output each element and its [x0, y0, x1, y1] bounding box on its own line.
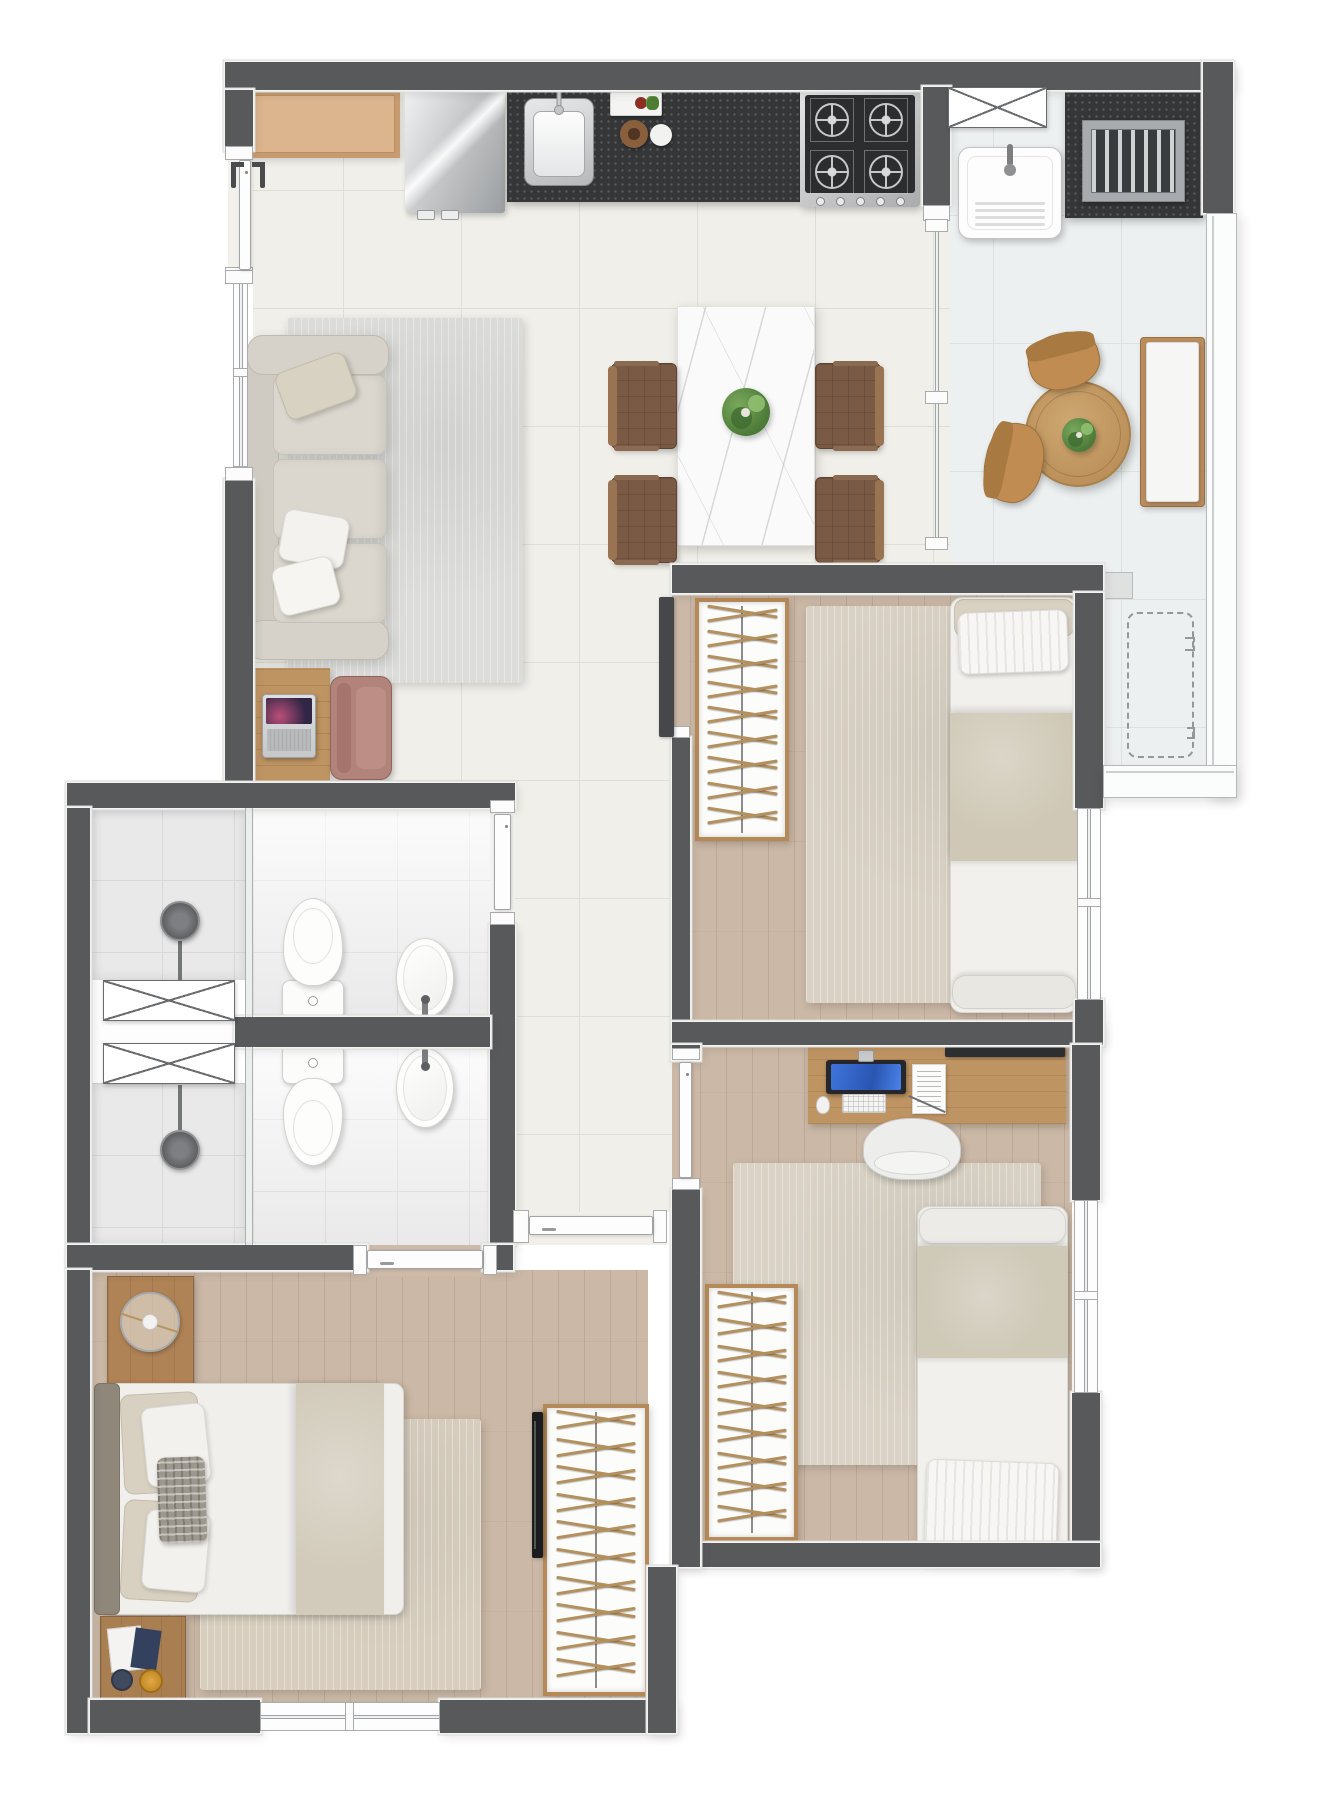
bedroom1-window — [1077, 808, 1101, 1000]
desk-keyboard — [842, 1094, 886, 1113]
wall-kitchen-service — [923, 87, 950, 205]
bedroom2-bed — [917, 1206, 1068, 1563]
bedroom2-door-cap-b — [672, 1178, 700, 1190]
bathroom1-door-cap-b — [490, 912, 515, 925]
suite-door-cap-a — [353, 1245, 367, 1275]
dining-plant — [722, 388, 770, 436]
wall-bedroom1-bottom — [672, 1022, 1103, 1045]
sofa — [245, 335, 395, 660]
balcony-railing-right — [1206, 213, 1237, 798]
balcony-plant — [1062, 418, 1096, 452]
bathroom1-door-cap-a — [490, 800, 515, 813]
wall-master-bottom-b — [440, 1700, 676, 1733]
kitchen-sink — [524, 98, 594, 186]
dining-chair-3 — [815, 363, 881, 449]
wall-bath-top — [67, 783, 515, 808]
balcony-bench — [1140, 337, 1205, 507]
laptop — [262, 694, 316, 758]
master-door-cap-b — [653, 1210, 667, 1243]
wall-master-top — [67, 1245, 367, 1270]
bedroom2-window — [1074, 1200, 1098, 1393]
entry-cabinet — [242, 90, 400, 158]
bedroom1-wardrobe — [695, 598, 789, 841]
trivet-wood — [620, 120, 648, 148]
suite-door-leaf — [367, 1250, 483, 1269]
wall-master-bottom-a — [90, 1700, 260, 1733]
ac-unit-outline — [1127, 612, 1194, 758]
bathroom1-toilet — [280, 898, 346, 1020]
master-door-leaf — [529, 1216, 653, 1235]
master-wardrobe — [543, 1404, 649, 1696]
trivet-white — [650, 124, 672, 146]
wall-balcony-ne-corner — [1203, 62, 1233, 213]
wall-master-right — [648, 1567, 676, 1733]
master-bed — [100, 1383, 404, 1615]
wall-bedroom1-left — [672, 738, 690, 1022]
wall-bedroom2-bottom — [672, 1543, 1100, 1567]
shower1-glass — [245, 808, 253, 1017]
wall-bath-right — [490, 925, 515, 1245]
shower1-floor — [90, 808, 245, 980]
bedroom1-door-cap — [672, 726, 690, 738]
balcony-railing-bottom — [1103, 765, 1237, 798]
desk-mouse — [816, 1096, 830, 1114]
master-tv — [532, 1412, 543, 1558]
wall-bedroom1-right-b — [1075, 1000, 1103, 1045]
shower2-head — [160, 1130, 200, 1170]
dining-chair-2 — [611, 477, 677, 563]
master-tray — [120, 1292, 180, 1352]
laundry-sink — [958, 147, 1062, 239]
desk-shelf — [945, 1047, 1065, 1057]
bedroom2-door-leaf — [679, 1062, 692, 1178]
entry-frame-a — [225, 146, 253, 160]
shower2-glass — [245, 1047, 253, 1245]
dining-chair-1 — [611, 363, 677, 449]
bathroom1-door-leaf — [494, 814, 511, 910]
barbecue-grill — [1082, 120, 1185, 202]
stove — [800, 90, 920, 207]
living-window-cap-b — [225, 467, 253, 481]
wall-top — [225, 62, 1233, 90]
dining-chair-4 — [815, 477, 881, 563]
wall-bedroom1-right-a — [1075, 593, 1103, 808]
bedroom1-bed — [950, 597, 1078, 1013]
living-window — [233, 281, 248, 467]
wall-left-mid — [225, 480, 253, 785]
fridge — [405, 92, 505, 213]
wall-bedroom2-left-b — [672, 1190, 700, 1567]
wall-bath-mid — [235, 1017, 490, 1047]
bedroom1-door-leaf — [659, 597, 674, 737]
bedroom1-door-floor-patch — [672, 593, 690, 738]
bedroom2-door-cap-a — [672, 1048, 700, 1060]
entry-frame-b — [225, 270, 253, 284]
cutting-board — [610, 92, 662, 116]
bathroom1-sink — [396, 938, 454, 1018]
corridor-floor — [515, 783, 672, 1212]
wall-bedroom2-right-b — [1072, 1393, 1100, 1567]
balcony-sill — [1103, 572, 1133, 599]
bathroom2-sink — [396, 1048, 454, 1128]
wall-bedroom2-right-a — [1072, 1045, 1100, 1200]
entry-door-handle — [231, 162, 265, 192]
suite-door-cap-b — [483, 1245, 497, 1275]
shaft-bath-2 — [103, 1043, 235, 1084]
master-door-cap-a — [513, 1210, 529, 1243]
bedroom2-wardrobe — [705, 1284, 798, 1541]
shower1-head — [160, 901, 200, 941]
shaft-bath-1 — [103, 980, 235, 1021]
desk-papers — [912, 1064, 946, 1114]
wall-bath-left — [67, 808, 90, 1270]
master-nightstand — [100, 1616, 186, 1700]
bathroom2-toilet — [280, 1044, 346, 1166]
bedroom2-desk-chair — [863, 1118, 961, 1180]
desk-monitor — [826, 1060, 906, 1094]
wall-bedroom1-top — [672, 565, 1103, 593]
living-desk-chair — [330, 676, 392, 780]
wall-master-left — [67, 1270, 90, 1733]
master-window — [260, 1702, 440, 1731]
wall-left-upper — [225, 90, 253, 150]
floorplan-canvas — [0, 0, 1317, 1800]
balcony-sliding-door — [929, 219, 944, 550]
shaft-kitchen — [948, 87, 1047, 128]
